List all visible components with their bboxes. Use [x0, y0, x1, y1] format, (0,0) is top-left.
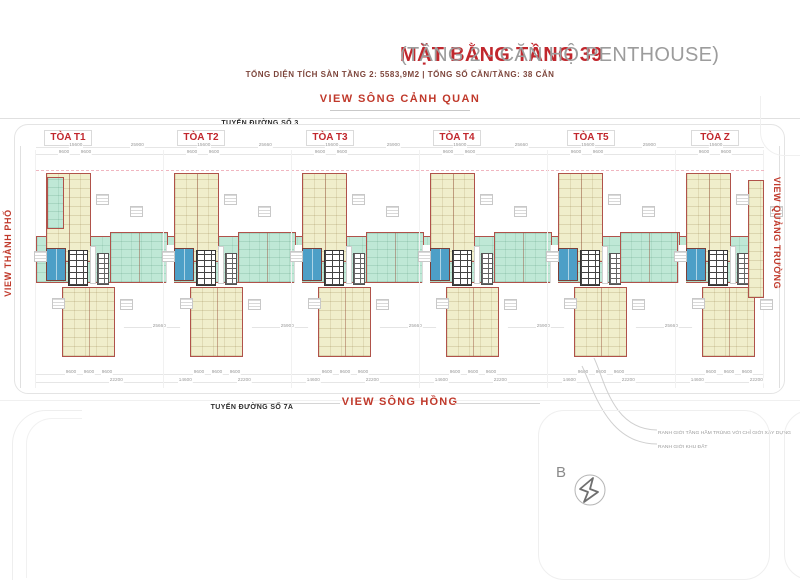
unit-info-box — [308, 298, 321, 309]
unit-info-box — [224, 194, 237, 205]
unit-info-box — [504, 299, 517, 310]
grid-line — [419, 150, 420, 388]
unit-info-box — [418, 251, 431, 262]
dim-value: 25660 — [408, 324, 423, 329]
unit-info-box — [52, 298, 65, 309]
grid-line — [35, 150, 36, 388]
basement-boundary-line — [36, 170, 764, 171]
dim-value: 9600 — [80, 150, 92, 155]
dim-value: 9600 — [723, 370, 735, 375]
dim-value: 22200 — [493, 378, 508, 383]
mid-unit-block — [620, 232, 678, 283]
dim-value: 25900 — [642, 143, 657, 148]
dim-value: 9600 — [570, 150, 582, 155]
dim-value: 22200 — [749, 378, 764, 383]
unit-info-box — [120, 299, 133, 310]
mid-unit-block — [238, 232, 296, 283]
dim-value: 9600 — [65, 370, 77, 375]
dimension-line-top-2 — [36, 154, 764, 155]
grid-line — [547, 150, 548, 388]
lobby — [474, 246, 480, 284]
unit-info-box — [736, 194, 749, 205]
bottom-unit-block — [446, 287, 499, 357]
dim-value: 9600 — [336, 150, 348, 155]
blue-unit — [686, 248, 706, 281]
dim-value: 9600 — [720, 150, 732, 155]
end-unit-block — [748, 180, 764, 298]
bottom-unit-block — [190, 287, 243, 357]
street-line-top — [0, 118, 800, 119]
elevator-core — [196, 250, 216, 286]
dim-value: 9600 — [357, 370, 369, 375]
dim-value: 25900 — [536, 324, 551, 329]
dim-value: 25660 — [514, 143, 529, 148]
unit-info-box — [34, 251, 47, 262]
unit-info-box — [760, 299, 773, 310]
dim-value: 9600 — [339, 370, 351, 375]
unit-info-box — [632, 299, 645, 310]
lobby — [602, 246, 608, 284]
dim-value: 9600 — [592, 150, 604, 155]
dim-value: 14600 — [178, 378, 193, 383]
elevator-core — [68, 250, 88, 286]
dimension-line-left — [20, 146, 21, 388]
view-label-right: VIEW QUẢNG TRƯỜNG — [772, 168, 782, 298]
mid-unit-block — [494, 232, 552, 283]
grid-line — [163, 150, 164, 388]
dim-value: 9600 — [467, 370, 479, 375]
floor-plan-sheet: MẶT BẰNG TẦNG 39 (TẦNG 2 - CĂN HỘ PENTHO… — [0, 0, 800, 565]
blue-unit — [430, 248, 450, 281]
dim-value: 9600 — [698, 150, 710, 155]
bottom-unit-block — [62, 287, 115, 357]
dim-value: 9600 — [186, 150, 198, 155]
dim-value: 25660 — [258, 143, 273, 148]
dim-value: 25900 — [280, 324, 295, 329]
blue-unit — [302, 248, 322, 281]
dim-value: 14600 — [434, 378, 449, 383]
unit-info-box — [162, 251, 175, 262]
blue-unit — [174, 248, 194, 281]
dim-value: 15600 — [197, 143, 212, 148]
dim-value: 9600 — [208, 150, 220, 155]
unit-info-box — [674, 251, 687, 262]
blue-unit — [558, 248, 578, 281]
dim-value: 9600 — [314, 150, 326, 155]
stair-core — [353, 253, 365, 285]
dim-value: 14600 — [306, 378, 321, 383]
dim-value: 9600 — [211, 370, 223, 375]
unit-info-box — [546, 251, 559, 262]
unit-info-box — [608, 194, 621, 205]
unit-info-box — [290, 251, 303, 262]
dim-value: 9600 — [741, 370, 753, 375]
elevator-core — [452, 250, 472, 286]
dim-value: 9600 — [321, 370, 333, 375]
dim-value: 9600 — [705, 370, 717, 375]
dim-value: 9600 — [485, 370, 497, 375]
unit-info-box — [352, 194, 365, 205]
grid-line — [291, 150, 292, 388]
dim-value: 25660 — [152, 324, 167, 329]
dim-value: 22200 — [237, 378, 252, 383]
dim-value: 9600 — [58, 150, 70, 155]
stair-core — [481, 253, 493, 285]
road-block — [538, 410, 770, 580]
road-arc — [760, 96, 800, 156]
dim-value: 15600 — [581, 143, 596, 148]
unit-info-box — [692, 298, 705, 309]
lobby — [218, 246, 224, 284]
title-secondary: (TẦNG 2 - CĂN HỘ PENTHOUSE) — [400, 44, 719, 67]
dim-value: 22200 — [109, 378, 124, 383]
dim-value: 15600 — [325, 143, 340, 148]
dim-value: 9600 — [83, 370, 95, 375]
mid-unit-block — [110, 232, 168, 283]
dim-value: 9600 — [442, 150, 454, 155]
dim-value: 15600 — [709, 143, 724, 148]
dim-value: 9600 — [464, 150, 476, 155]
dim-value: 9600 — [229, 370, 241, 375]
view-bottom-line-right — [455, 403, 540, 404]
dim-value: 25900 — [386, 143, 401, 148]
view-top-underline — [330, 110, 470, 111]
dim-value: 9600 — [449, 370, 461, 375]
view-label-left: VIEW THÀNH PHỐ — [3, 198, 13, 308]
unit-info-box — [376, 299, 389, 310]
dim-value: 9600 — [101, 370, 113, 375]
unit-info-box — [564, 298, 577, 309]
stair-core — [225, 253, 237, 285]
unit-info-box — [130, 206, 143, 217]
road-arc — [26, 418, 82, 578]
mid-unit-block — [366, 232, 424, 283]
unit-info-box — [386, 206, 399, 217]
unit-info-box — [258, 206, 271, 217]
unit-info-box — [642, 206, 655, 217]
subtitle: TỔNG DIỆN TÍCH SÀN TẦNG 2: 5583,9M2 | TỔ… — [0, 70, 800, 79]
dim-value: 25660 — [664, 324, 679, 329]
unit-info-box — [436, 298, 449, 309]
unit-info-box — [180, 298, 193, 309]
dim-value: 22200 — [365, 378, 380, 383]
dim-value: 25900 — [130, 143, 145, 148]
blue-unit — [46, 248, 66, 281]
elevator-core — [324, 250, 344, 286]
dim-value: 15600 — [69, 143, 84, 148]
lobby — [730, 246, 736, 284]
unit-info-box — [248, 299, 261, 310]
dim-value: 15600 — [453, 143, 468, 148]
stair-core — [97, 253, 109, 285]
street-label-bottom: TUYẾN ĐƯỜNG SỐ 7A — [172, 404, 332, 411]
unit-info-box — [96, 194, 109, 205]
road-block — [784, 410, 800, 580]
dim-value: 14600 — [690, 378, 705, 383]
top-unit-teal — [47, 177, 64, 229]
bottom-unit-block — [318, 287, 371, 357]
unit-info-box — [514, 206, 527, 217]
view-label-top: VIEW SÔNG CẢNH QUAN — [0, 93, 800, 105]
bottom-unit-block — [574, 287, 627, 357]
unit-info-box — [480, 194, 493, 205]
elevator-core — [580, 250, 600, 286]
elevator-core — [708, 250, 728, 286]
dim-value: 9600 — [193, 370, 205, 375]
lobby — [346, 246, 352, 284]
lobby — [90, 246, 96, 284]
